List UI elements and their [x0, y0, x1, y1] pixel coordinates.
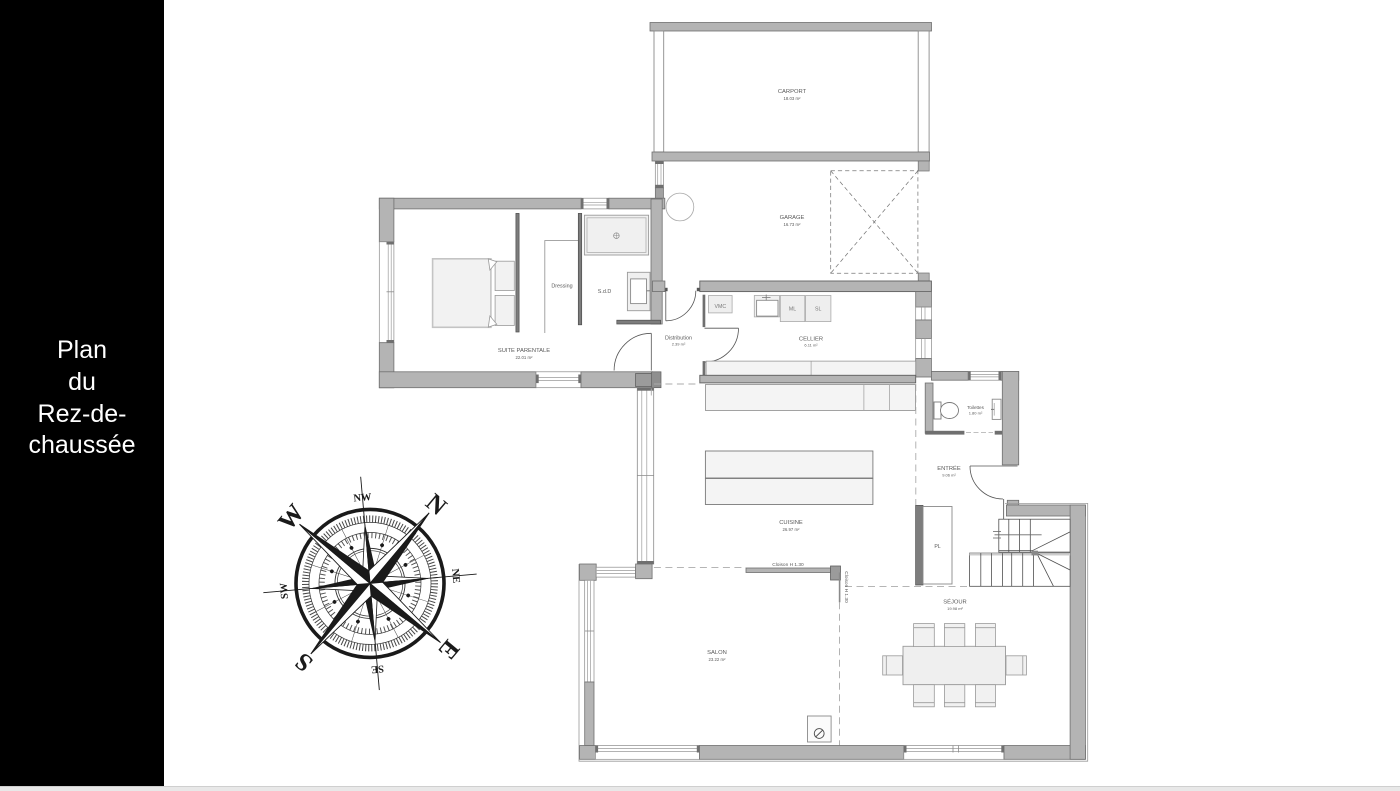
svg-text:SW: SW [279, 582, 291, 600]
svg-text:CARPORT: CARPORT [778, 89, 807, 95]
svg-text:26.97 m²: 26.97 m² [783, 527, 801, 532]
svg-text:23.22 m²: 23.22 m² [709, 657, 727, 662]
svg-text:SALON: SALON [707, 650, 727, 656]
svg-text:GARAGE: GARAGE [780, 215, 805, 221]
svg-text:N: N [420, 489, 451, 521]
svg-text:SE: SE [371, 663, 385, 675]
svg-text:NW: NW [353, 492, 372, 505]
svg-text:1.80 m²: 1.80 m² [969, 411, 983, 416]
svg-text:NE: NE [449, 568, 461, 583]
svg-text:19.98 m²: 19.98 m² [947, 606, 963, 611]
svg-text:6.11 m²: 6.11 m² [804, 342, 818, 347]
svg-text:VMC: VMC [715, 304, 727, 310]
svg-text:W: W [273, 499, 310, 536]
svg-text:S.d.D: S.d.D [598, 289, 612, 295]
svg-text:2.39 m²: 2.39 m² [672, 341, 686, 346]
svg-text:18.03 m²: 18.03 m² [784, 96, 802, 101]
svg-text:16.73 m²: 16.73 m² [784, 222, 802, 227]
svg-text:Toilettes: Toilettes [967, 405, 985, 410]
svg-text:22.01 m²: 22.01 m² [516, 355, 534, 360]
svg-text:Cloison H 1.30: Cloison H 1.30 [772, 562, 804, 568]
svg-text:ML: ML [789, 307, 796, 313]
svg-text:SL: SL [815, 307, 821, 313]
svg-text:E: E [433, 634, 464, 664]
svg-text:ENTRÉE: ENTRÉE [937, 465, 961, 472]
svg-text:Cloison H 1.30: Cloison H 1.30 [843, 571, 849, 603]
svg-text:SUITE PARENTALE: SUITE PARENTALE [498, 348, 550, 354]
svg-text:PL: PL [934, 544, 940, 550]
svg-text:SÉJOUR: SÉJOUR [943, 599, 967, 606]
svg-text:Dressing: Dressing [551, 284, 572, 290]
svg-text:CUISINE: CUISINE [779, 520, 803, 526]
svg-text:9.06 m²: 9.06 m² [942, 473, 956, 478]
